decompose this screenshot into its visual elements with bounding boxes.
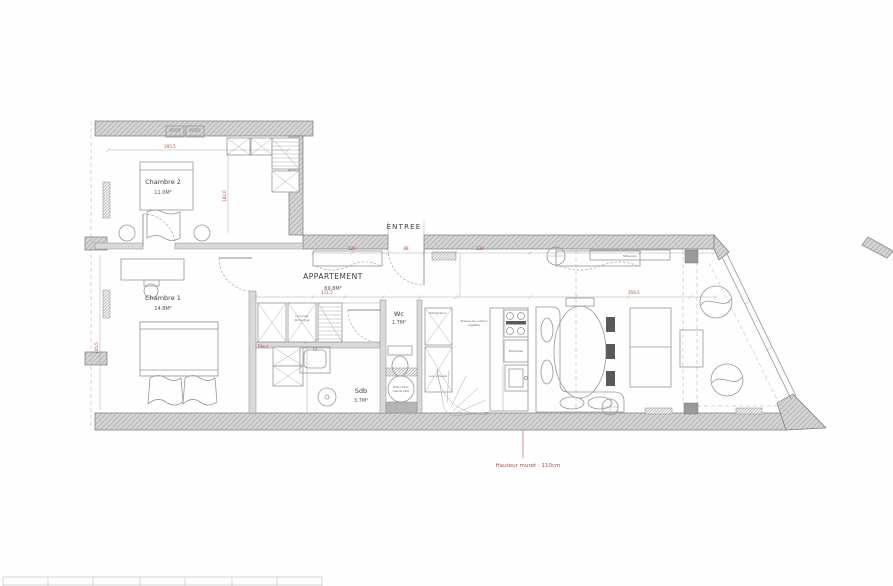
wc-area: 1.7M² <box>392 320 406 326</box>
door-chambre2 <box>143 214 175 246</box>
svg-text:réglable: réglable <box>468 323 480 327</box>
fileur-label: Fileur <box>258 344 269 349</box>
radiator-living-1 <box>645 408 672 414</box>
ceiling-light-1 <box>547 247 565 265</box>
radiator-chambre2 <box>103 182 110 218</box>
dim-mid-2: 456.5 <box>628 290 640 295</box>
entree-label: ENTREE <box>387 223 422 231</box>
chambre2-name: Chambre 2 <box>145 178 181 186</box>
door-entrance <box>388 249 424 285</box>
ball-chair-2 <box>711 364 743 396</box>
water-heater: Ballon Eaux chaude 200L <box>388 376 414 402</box>
hauteur-muret-text: Hauteur muret : 110cm <box>496 463 561 469</box>
armchair-1 <box>148 376 183 406</box>
poubelles-label: Poubelles <box>509 349 524 353</box>
chambre2-furniture <box>103 126 299 241</box>
wc-name: Wc <box>394 310 404 318</box>
wall-top-main-right <box>424 235 714 249</box>
appartement-area: 69.8M² <box>324 286 341 292</box>
cooktop <box>504 310 528 337</box>
wardrobe-chambre2 <box>227 138 299 192</box>
chambre2-area: 11.0M² <box>154 190 171 196</box>
svg-text:chaude 200L: chaude 200L <box>393 389 410 393</box>
toilet-tank <box>388 346 412 355</box>
bedside-stool-right <box>194 225 210 241</box>
wall-bottom-right-corner <box>777 394 826 430</box>
wall-top-main-left <box>303 235 388 249</box>
dim-top-chambre2: 295.5 <box>164 144 176 149</box>
title-block <box>3 577 322 586</box>
floor-plan-page: Télévision Lave linge Sèche linge <box>0 0 893 586</box>
dim-hall-2: 88 <box>403 246 409 251</box>
chair-2 <box>606 344 615 359</box>
sofa <box>630 308 671 387</box>
muret-block <box>386 402 417 413</box>
ball-chair-1 <box>700 286 732 318</box>
refrigerateur-label: Réfrigérateur <box>429 311 447 315</box>
bed-chambre1 <box>140 322 218 376</box>
desk <box>121 259 184 280</box>
shower-drain <box>318 388 336 406</box>
armchair-2 <box>183 376 217 406</box>
lave-linge-label: Lave linge <box>295 314 309 318</box>
wall-top-right-corner <box>714 235 729 260</box>
chambre1-name: Chambre 1 <box>145 294 181 302</box>
ceiling-light-2 <box>602 399 618 415</box>
seche-linge-label: Sèche linge <box>294 318 309 322</box>
bedside-stool-left <box>119 225 135 241</box>
post-bottom <box>684 403 698 414</box>
dim-hall-3: 133 <box>476 246 484 251</box>
sdb-area: 3.7M² <box>354 398 368 404</box>
sdb-name: Sdb <box>355 387 367 395</box>
radiator-living-2 <box>736 408 762 414</box>
oven <box>505 365 528 391</box>
dining-area <box>536 298 624 412</box>
television-label: Télévision <box>622 254 638 258</box>
post-top <box>685 250 698 263</box>
chambre1-furniture <box>103 259 218 405</box>
door-chambre1 <box>219 258 252 291</box>
tall-cabinet-column: Réfrigérateur Lave vaisselle <box>425 308 452 392</box>
side-table <box>680 330 703 367</box>
wall-fragment-right-edge <box>862 237 893 258</box>
wall-bottom <box>95 413 786 430</box>
chambre1-area: 14.8M² <box>154 306 171 312</box>
bed-chambre2 <box>140 162 193 210</box>
radiator-chambre1 <box>103 290 110 318</box>
dining-table <box>554 306 606 398</box>
radiator-cover-1 <box>313 251 382 266</box>
floor-plan-drawing: Télévision Lave linge Sèche linge <box>0 0 893 586</box>
door-wc <box>348 310 381 343</box>
dim-side-chambre1: 245.5 <box>94 342 99 354</box>
exterior-walls <box>85 121 893 430</box>
sdb-block: Lave linge Sèche linge <box>258 303 342 406</box>
dim-side-chambre2: 182.0 <box>222 190 227 202</box>
bed-blanket-chambre2 <box>147 210 180 241</box>
dim-hall-1: 120 <box>348 246 356 251</box>
svg-text:Ballon Eaux: Ballon Eaux <box>393 385 409 389</box>
hauteur-muret-annotation: Hauteur muret : 110cm <box>496 430 561 469</box>
kitchen: Poubelles Réfrigérateur Lave vaisselle P… <box>425 308 528 416</box>
chair-1 <box>606 317 615 332</box>
chair-3 <box>606 371 615 386</box>
appartement-name: APPARTEMENT <box>303 272 363 281</box>
